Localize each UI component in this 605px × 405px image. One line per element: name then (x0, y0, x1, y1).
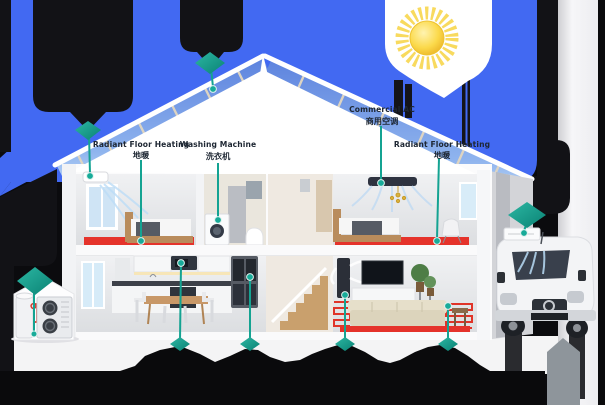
kitchen (76, 256, 266, 332)
floor-slab (70, 245, 484, 256)
dot-wall-ac (87, 173, 94, 180)
laundry-room (204, 174, 266, 245)
upper-hallway (268, 174, 333, 245)
left-edge-bar (0, 0, 11, 152)
bumper-insert (531, 313, 568, 320)
label-en: Radiant Floor Heating (93, 140, 189, 149)
bedroom-right (333, 174, 478, 245)
upper-cabinets (198, 256, 230, 272)
dot-floor-ac (342, 292, 349, 299)
gray-callout-pentagon (547, 338, 580, 405)
bed-base (335, 235, 401, 242)
dot-van-ac (521, 230, 528, 237)
dot-floor-left (138, 238, 145, 245)
infographic-canvas: Radiant Floor Heating 地暖 Washing Machine… (0, 0, 605, 405)
heat-pump-outdoor-unit (37, 297, 72, 338)
dot-ceiling-ac (378, 180, 385, 187)
tv (362, 261, 403, 284)
stairwell (266, 256, 333, 332)
dot-washer (215, 217, 222, 224)
headlight (567, 291, 584, 303)
label-zh: 洗衣机 (206, 151, 231, 161)
callout-bubble-wall-ac (33, 0, 133, 131)
windshield (512, 250, 570, 280)
diagram-svg: Radiant Floor Heating 地暖 Washing Machine… (0, 0, 605, 405)
side-table (452, 308, 468, 313)
door (316, 180, 332, 232)
dot-fridge (247, 274, 254, 281)
label-en: Radiant Floor Heating (394, 140, 490, 149)
partition-wall (196, 174, 204, 245)
ceiling-ac-unit (368, 177, 417, 186)
dot-living-floor (445, 303, 452, 310)
callout-bar-van (537, 0, 558, 152)
side-mirror (497, 272, 505, 283)
toilet (246, 228, 263, 245)
right-edge-bar (598, 0, 605, 405)
dot-floor-right (434, 238, 441, 245)
label-zh: 商用空调 (366, 116, 399, 126)
right-wall (477, 170, 490, 340)
foundation (70, 332, 484, 340)
label-en: Washing Machine (180, 140, 257, 149)
picture-frame (300, 179, 310, 192)
refrigerator (231, 256, 258, 308)
headlight (500, 293, 517, 305)
bedroom-left (76, 172, 196, 245)
side-mirror (578, 270, 586, 281)
countertop (112, 281, 232, 286)
dot-solar-roof (210, 86, 217, 93)
window (461, 184, 476, 218)
label-zh: 地暖 (434, 150, 451, 160)
floor-heating-carpet (340, 326, 470, 332)
bed-base (127, 236, 193, 243)
mirror (246, 181, 262, 199)
label-en: Commercial AC (349, 105, 415, 114)
living-room (331, 256, 477, 332)
dot-heat-pump (31, 331, 37, 337)
label-zh: 地暖 (133, 150, 150, 160)
under-cabinet-light (134, 272, 230, 275)
upper-cabinets (134, 256, 171, 272)
door (228, 186, 246, 243)
dot-microwave (178, 260, 185, 267)
